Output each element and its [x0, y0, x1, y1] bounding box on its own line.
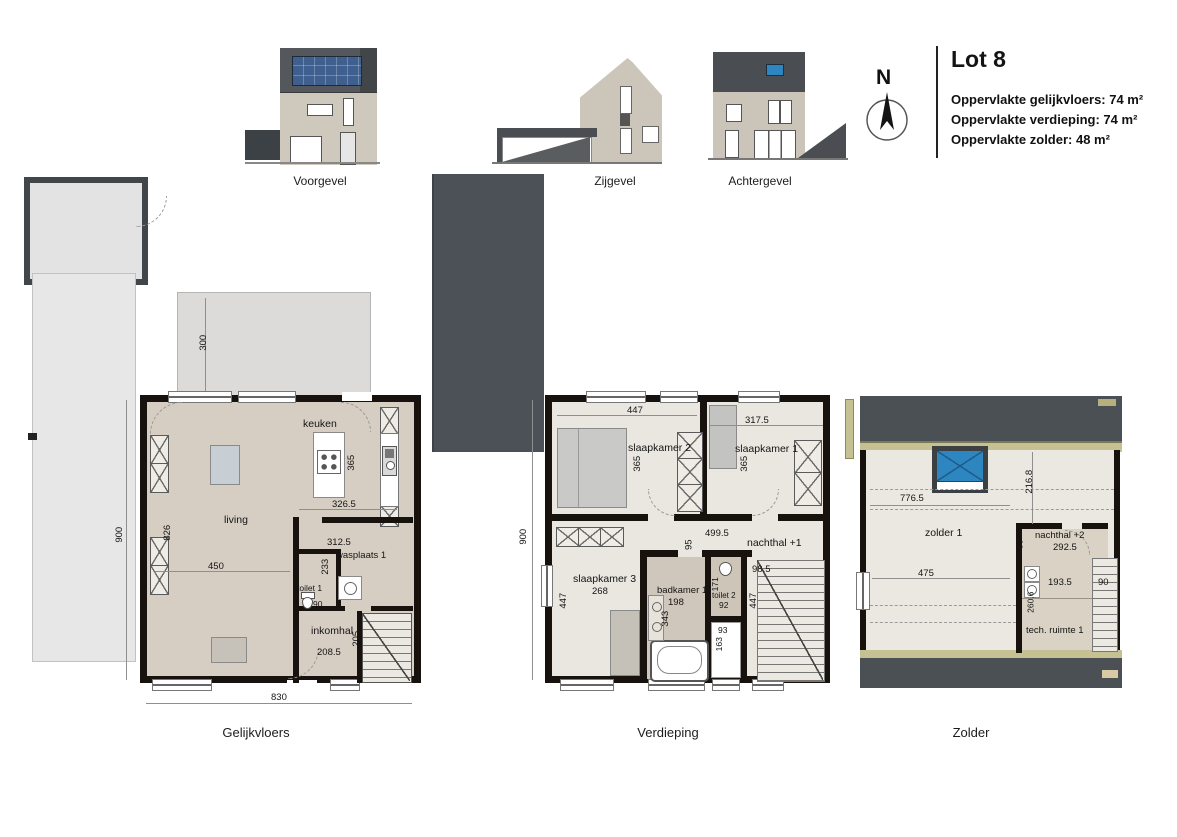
dim-label: 326.5 [332, 500, 356, 510]
dim-label: 312.5 [327, 538, 351, 548]
window [856, 572, 870, 610]
ground-line [245, 162, 380, 164]
dim-label: 365 [740, 456, 750, 472]
dim-label: 205 [352, 631, 362, 647]
driveway [32, 273, 136, 662]
dim-label: 475 [918, 569, 934, 579]
window [620, 86, 632, 114]
dim-label: 300 [199, 335, 209, 351]
furniture [211, 637, 247, 663]
solar-panel [292, 56, 362, 86]
dim-label: 163 [715, 637, 724, 651]
dim-label: 365 [633, 456, 643, 472]
dim-label: 826 [163, 525, 173, 541]
room-label: living [224, 515, 248, 526]
wardrobe [556, 527, 580, 547]
zolder-label: Zolder [911, 725, 1031, 740]
dim-label: 171 [711, 577, 720, 591]
window [541, 565, 553, 607]
window [343, 98, 354, 126]
roof-detail [1102, 670, 1118, 678]
dim-label: 343 [661, 611, 671, 627]
door-opening [678, 550, 702, 557]
pitch-line [870, 489, 1114, 490]
north-label: N [876, 66, 891, 90]
dim-line [870, 505, 1010, 506]
toilet-icon [301, 592, 313, 608]
room-label: slaapkamer 3 [573, 574, 636, 585]
dim-label: 450 [208, 562, 224, 572]
carport-plan [24, 177, 148, 285]
dim-label: 90 [313, 600, 322, 609]
carport-roof [497, 128, 597, 137]
window [290, 136, 322, 164]
room-label: keuken [303, 419, 337, 430]
window [754, 130, 796, 159]
pillow [558, 467, 579, 507]
wardrobe [794, 440, 822, 474]
window [660, 391, 698, 403]
masonry-pier [150, 565, 169, 595]
dim-label: 292.5 [1053, 543, 1077, 553]
dim-label: 208.5 [317, 648, 341, 658]
house-front [280, 48, 377, 164]
zijgevel-elevation [492, 50, 667, 180]
masonry-pier [150, 463, 169, 493]
window [768, 100, 792, 124]
window [560, 679, 614, 691]
stairs-break-line [362, 613, 410, 681]
bed [557, 428, 627, 508]
roof-band [860, 658, 1122, 688]
dim-label: 260.6 [1026, 592, 1035, 613]
pitch-line [870, 622, 1016, 623]
garage-block [245, 130, 283, 160]
wall [299, 549, 341, 554]
dim-label: 365 [347, 455, 357, 471]
verdieping-label: Verdieping [608, 725, 728, 740]
door-opening [287, 680, 317, 689]
area-line-zolder: Oppervlakte zolder: 48 m² [951, 130, 1110, 150]
dim-line [126, 400, 127, 680]
roof [713, 52, 805, 92]
roof-detail [1098, 399, 1116, 406]
facade [713, 92, 805, 158]
bowl [302, 597, 313, 609]
lot-title: Lot 8 [951, 46, 1006, 73]
window [712, 679, 740, 691]
wardrobe [677, 458, 703, 486]
room-label: nachthal +2 [1035, 531, 1084, 541]
boiler-dial [1027, 569, 1037, 579]
masonry-pier [150, 435, 169, 465]
dim-label: 90 [1098, 578, 1109, 588]
header-rule [936, 46, 938, 158]
dim-line [872, 578, 1010, 579]
zijgevel-label: Zijgevel [585, 174, 645, 188]
dim-label: 447 [559, 593, 569, 609]
door [340, 132, 356, 165]
toilet-icon [718, 562, 732, 578]
bowl [719, 562, 732, 576]
achtergevel-elevation [708, 48, 848, 173]
room-label: tech. ruimte 1 [1026, 626, 1084, 636]
north-arrow-icon: N [862, 66, 916, 148]
wardrobe [600, 527, 624, 547]
dim-label: 98.5 [752, 565, 771, 575]
pitch-line [870, 509, 1114, 510]
door-arc [136, 196, 167, 227]
window [726, 104, 742, 122]
window [152, 679, 212, 691]
room-label: nachthal +1 [747, 538, 802, 549]
bed [610, 610, 640, 676]
dim-label: 776.5 [900, 494, 924, 504]
bed [709, 405, 737, 469]
room-label: slaapkamer 2 [628, 443, 691, 454]
window [725, 130, 739, 158]
room-label: slaapkamer 1 [735, 444, 798, 455]
dim-line [146, 703, 412, 704]
ground-line [492, 162, 662, 164]
window [330, 679, 360, 691]
voorgevel-elevation [245, 46, 380, 171]
zolder-plan [860, 396, 1122, 692]
dim-label: 198 [668, 598, 684, 608]
drainer [385, 449, 394, 458]
dim-label: 216.8 [1025, 470, 1035, 494]
dim-label: 830 [271, 693, 287, 703]
room-label: toilet 1 [297, 584, 322, 593]
window [238, 391, 296, 403]
room-label: inkomhal [311, 626, 353, 637]
dim-label: 95 [685, 539, 695, 550]
dim-label: 92 [719, 601, 728, 610]
skylight-frame [932, 446, 988, 493]
room-label: toilet 2 [712, 592, 736, 600]
washing-machine-icon [338, 576, 362, 600]
dim-label: 900 [115, 527, 125, 543]
gelijkvloers-label: Gelijkvloers [196, 725, 316, 740]
room-label: badkamer 1 [657, 586, 707, 596]
bathtub-icon [650, 640, 709, 682]
dim-label: 317.5 [745, 416, 769, 426]
sink-bowl [386, 461, 395, 470]
neighbor-building [432, 174, 544, 452]
panel [620, 114, 630, 126]
dim-label: 90 [1015, 540, 1024, 549]
window [307, 104, 333, 116]
sink-icon [382, 446, 397, 476]
stairs [1092, 558, 1118, 652]
dim-label: 900 [519, 529, 529, 545]
ground-line [708, 158, 848, 160]
dim-label: 268 [592, 587, 608, 597]
dim-label: 233 [321, 559, 331, 575]
window [738, 391, 780, 403]
window [642, 126, 659, 143]
dim-label: 93 [718, 626, 727, 635]
pillow [558, 429, 579, 467]
compass-icon [862, 88, 916, 148]
voorgevel-label: Voorgevel [285, 174, 355, 188]
skylight-glass [937, 451, 983, 481]
gable-house [580, 58, 662, 162]
side-roof-wedge [798, 123, 846, 158]
door-opening [342, 392, 372, 401]
floorplan-sheet: Voorgevel Zijgevel Achtergevel N [0, 0, 1177, 837]
wardrobe [677, 484, 703, 512]
wall [640, 550, 647, 683]
wardrobe [578, 527, 602, 547]
party-wall [845, 399, 854, 459]
area-line-gelijkvloers: Oppervlakte gelijkvloers: 74 m² [951, 90, 1143, 110]
dim-label: 447 [749, 593, 759, 609]
tub-inner [657, 646, 702, 674]
furniture [210, 445, 240, 485]
dim-label: 193.5 [1048, 578, 1072, 588]
room-label: zolder 1 [925, 528, 962, 539]
masonry-pier [380, 407, 399, 435]
wardrobe [794, 472, 822, 506]
window [620, 128, 632, 154]
skylight [766, 64, 784, 76]
pitch-line [870, 605, 1016, 606]
masonry-pier [150, 537, 169, 567]
roof-edge [360, 48, 377, 92]
stove-icon [317, 450, 341, 474]
room-label: wasplaats 1 [336, 551, 386, 561]
window [586, 391, 646, 403]
dim-label: 499.5 [705, 529, 729, 539]
drum [344, 582, 357, 595]
stairs-break-line [757, 560, 823, 680]
boiler-icon [1024, 566, 1040, 582]
dim-label: 447 [627, 406, 643, 416]
wall [552, 514, 825, 521]
site-marker [28, 433, 37, 440]
achtergevel-label: Achtergevel [724, 174, 796, 188]
roof-band [860, 396, 1122, 443]
dim-line [532, 400, 533, 680]
area-line-verdieping: Oppervlakte verdieping: 74 m² [951, 110, 1137, 130]
door-opening [298, 517, 322, 523]
